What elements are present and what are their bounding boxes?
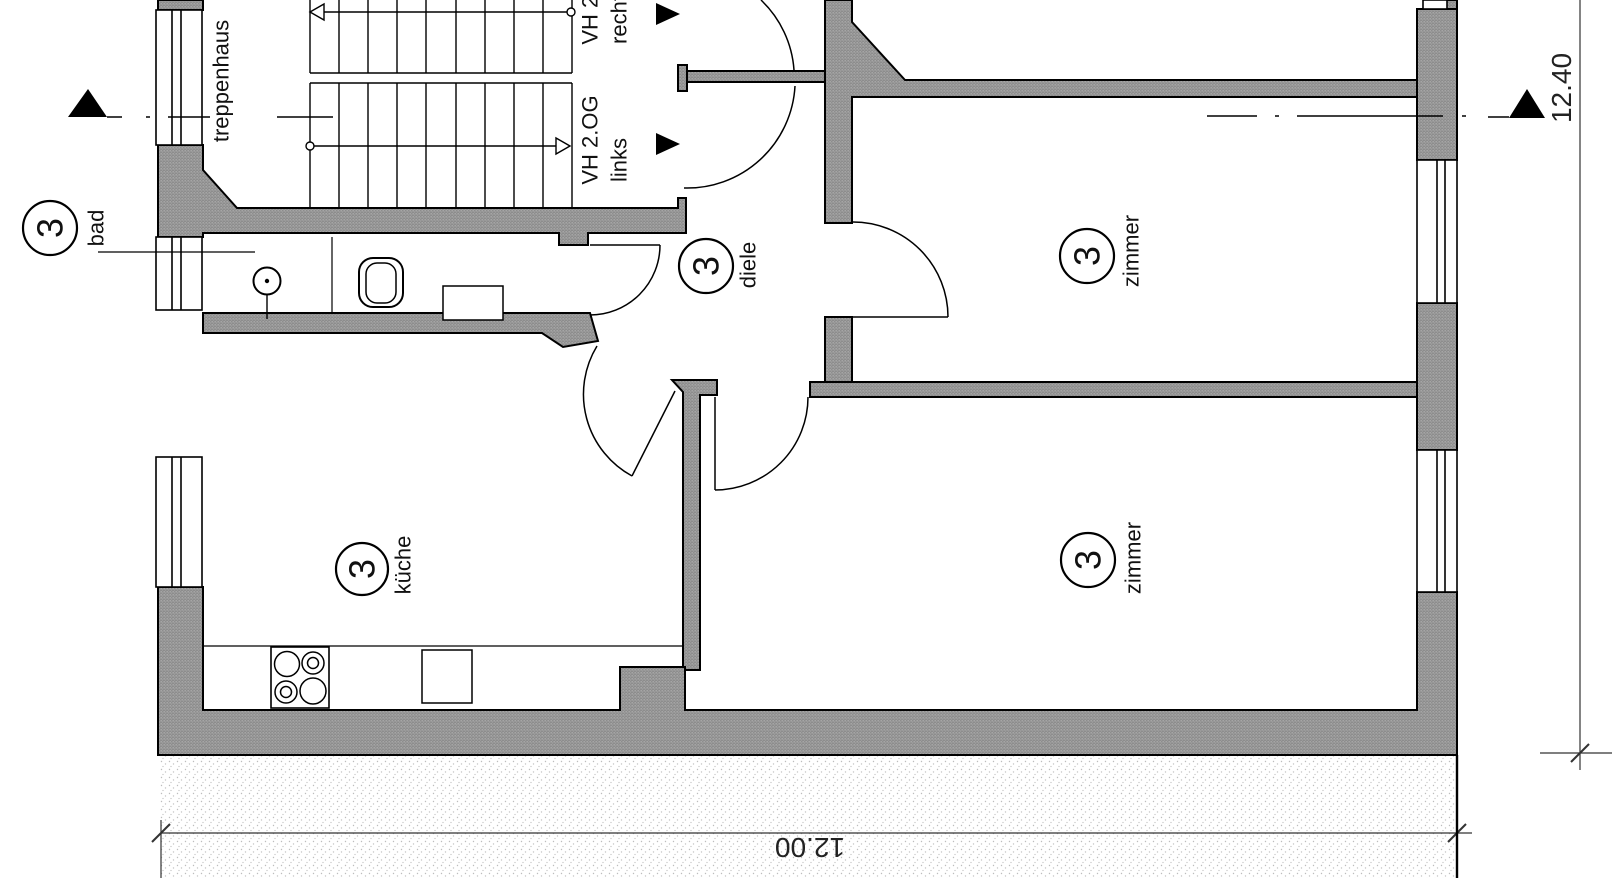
entry-rechts-line2: rechts <box>607 0 632 44</box>
arrowhead-left-icon <box>310 4 324 20</box>
wall-between-zimmer <box>810 382 1417 397</box>
door-zimmer-bottom <box>715 397 808 490</box>
wall-kueche-zimmer-partition <box>672 380 717 670</box>
wall-entry-partition-cap <box>678 65 687 91</box>
wall-bottom-exterior <box>158 587 1457 755</box>
room-badge-zimmer-bottom: 3 zimmer <box>1061 522 1146 594</box>
wall-entrance-and-zimmer-top <box>825 0 1417 223</box>
room-badge-kueche: 3 küche <box>336 536 416 595</box>
svg-text:3: 3 <box>30 218 71 238</box>
floor-plan-page: 12.40 12.00 treppenhaus VH 2.OG rechts V… <box>0 0 1615 878</box>
staircase <box>306 0 575 207</box>
walls <box>158 0 1457 755</box>
section-marker-right-icon <box>1509 89 1545 118</box>
wall-right-pier-mid <box>1417 303 1457 450</box>
room-name-kueche: küche <box>391 536 416 595</box>
room-name-zimmer-top: zimmer <box>1119 215 1144 287</box>
window-stairwell-west <box>156 10 202 145</box>
room-badge-bad: 3 bad <box>23 201 109 255</box>
wall-left-top-cap <box>158 0 203 10</box>
stair-run-arrow-up <box>310 4 575 20</box>
bad-toilet <box>359 258 403 307</box>
entry-markers <box>656 3 680 155</box>
wall-right-pier-top <box>1417 9 1457 160</box>
dimension-value-right: 12.40 <box>1546 53 1577 123</box>
wall-entry-partition <box>687 71 825 82</box>
arrowhead-right-icon <box>556 138 570 154</box>
kueche-stove <box>271 647 329 708</box>
window-zimmer-bottom-east <box>1417 450 1457 592</box>
door-zimmer-top <box>852 222 948 317</box>
fixtures <box>203 237 683 708</box>
entry-triangle-left-icon <box>656 133 680 155</box>
dimension-value-bottom: 12.00 <box>775 832 845 863</box>
bad-appliance-box <box>443 286 503 320</box>
door-kueche <box>583 346 675 476</box>
entry-triangle-right-icon <box>656 3 680 25</box>
floor-plan-drawing: 12.40 12.00 treppenhaus VH 2.OG rechts V… <box>0 0 1615 878</box>
stair-run-arrow-down <box>306 138 570 154</box>
wall-bad-kueche <box>203 313 598 347</box>
stairwell-label: treppenhaus <box>209 20 234 142</box>
kueche-sink-box <box>422 650 472 703</box>
room-badge-zimmer-top: 3 zimmer <box>1060 215 1144 287</box>
entry-links-line2: links <box>607 138 632 182</box>
svg-text:3: 3 <box>1067 246 1108 266</box>
svg-text:3: 3 <box>686 256 727 276</box>
door-entry-rechts-arc <box>761 0 794 70</box>
window-zimmer-top-east <box>1417 160 1457 303</box>
door-entry-links-arc <box>684 86 795 188</box>
door-bad <box>590 245 660 315</box>
svg-text:3: 3 <box>342 559 383 579</box>
room-name-diele: diele <box>736 242 761 288</box>
room-name-bad: bad <box>84 210 109 247</box>
stair-treads <box>310 0 572 207</box>
window-bad-west <box>156 237 202 310</box>
entry-links-line1: VH 2.OG <box>578 95 603 184</box>
bad-washbasin <box>254 268 281 320</box>
room-badge-diele: 3 diele <box>679 239 761 293</box>
svg-text:3: 3 <box>1068 550 1109 570</box>
window-kueche-west <box>156 457 202 587</box>
window-east-top-partial <box>1423 0 1447 9</box>
stair-landing-edges <box>310 73 572 83</box>
section-marker-left-icon <box>68 89 107 117</box>
room-name-zimmer-bottom: zimmer <box>1121 522 1146 594</box>
entry-rechts-line1: VH 2.OG <box>578 0 603 45</box>
